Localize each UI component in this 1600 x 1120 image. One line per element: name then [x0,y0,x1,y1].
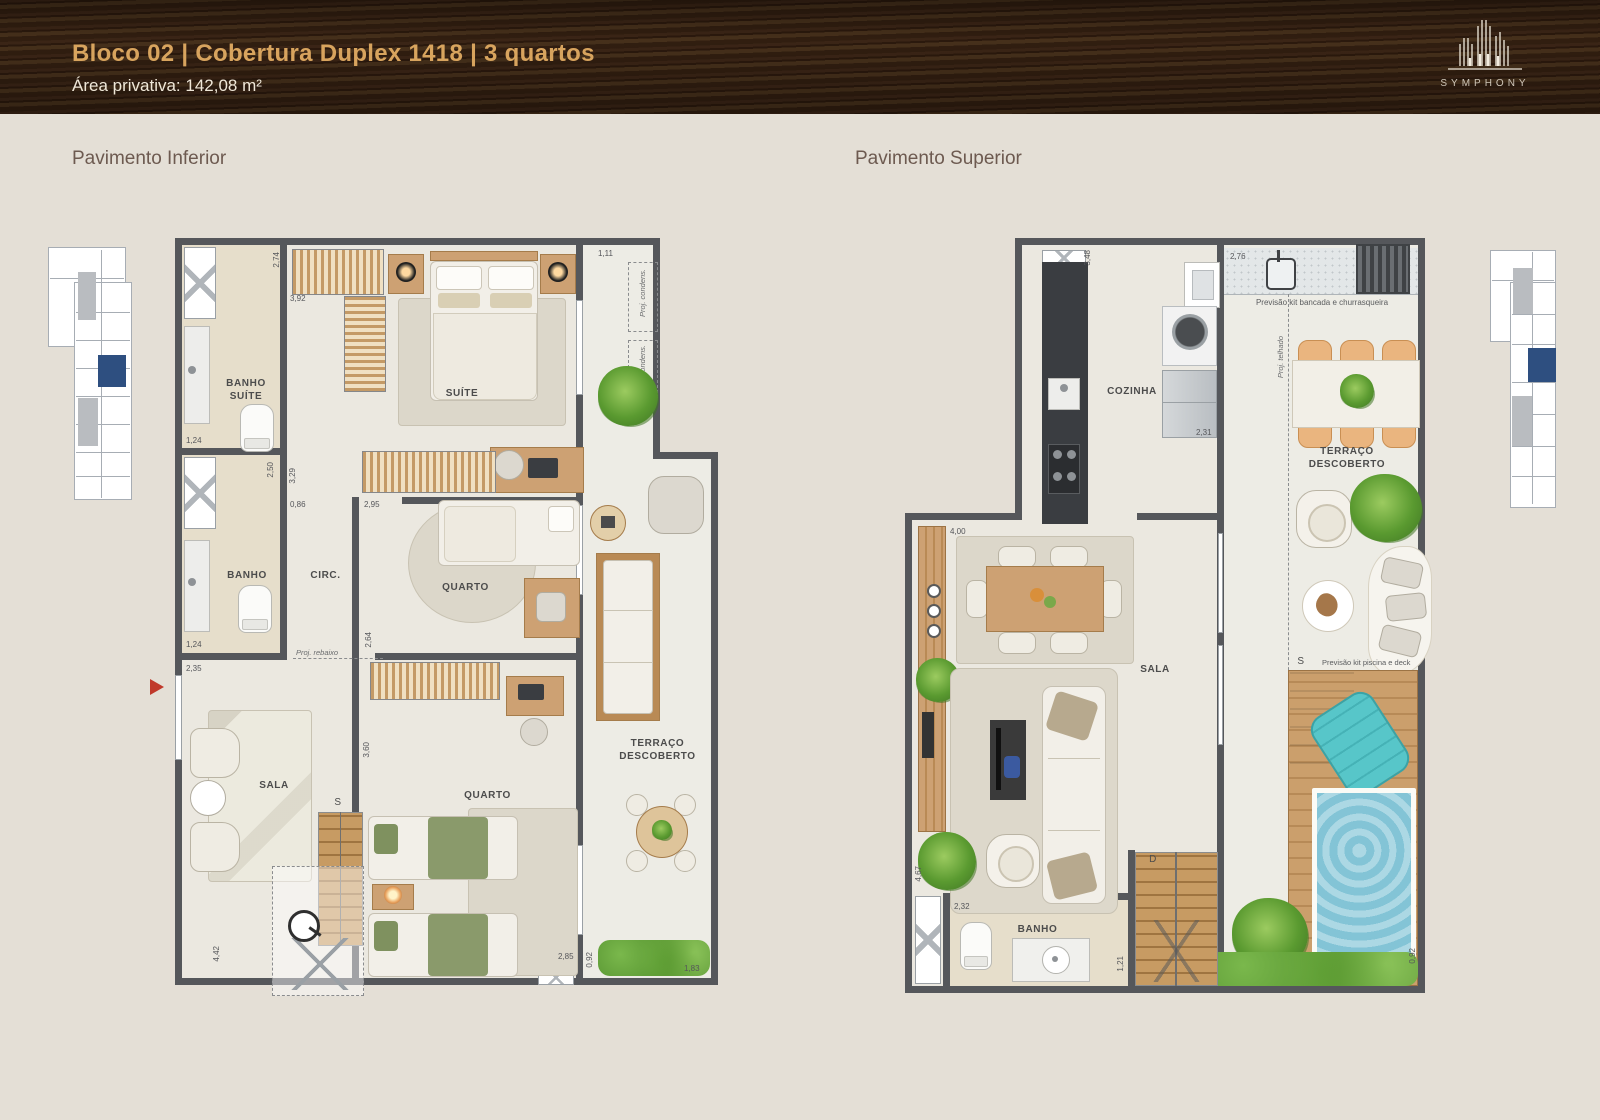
armchair-seat [998,846,1034,882]
room-label-cozinha: COZINHA [1092,386,1172,399]
key-plan-line [76,476,130,477]
key-plan-line [76,452,130,453]
room-label-quarto-1: QUARTO [428,582,503,595]
wall [1128,850,1135,993]
dim: 4,42 [212,946,221,962]
dim: 1,24 [186,640,202,649]
stair-label-s: S [330,797,346,810]
dining-chair [1050,632,1088,654]
cushion-line [603,662,653,663]
lamp-icon [396,262,416,282]
toilet [960,922,992,970]
dim: 0,92 [1408,948,1417,964]
dim: 2,85 [558,952,574,961]
bathroom-counter [184,540,210,632]
symphony-building-icon [1430,14,1540,76]
bed-blanket [433,313,537,400]
bancada-annotation: Previsão kit bancada e churrasqueira [1228,298,1416,307]
dim: 2,31 [1196,428,1212,437]
table-decor [1044,596,1056,608]
key-plan-line [1512,476,1556,477]
brand-name: SYMPHONY [1430,78,1540,89]
dim: 3,48 [1083,250,1092,266]
cushion-line [603,610,653,611]
bathroom-counter [184,326,210,424]
wall [182,653,287,660]
wall [175,238,660,245]
cushion-line [1048,758,1100,759]
under-stair-hatch [1140,920,1213,982]
room-label-terraco: TERRAÇO DESCOBERTO [595,738,720,763]
toilet [238,585,272,633]
private-area-subtitle: Área privativa: 142,08 m² [72,76,262,96]
key-plan-core-gray [1512,396,1532,446]
section-title-inferior: Pavimento Inferior [72,148,226,170]
glass-door [1218,533,1223,633]
wall [653,452,718,459]
side-table-round [190,780,226,816]
dim: 2,95 [364,500,380,509]
dim: 1,83 [684,964,700,973]
terrace-chair [674,850,696,872]
decor-panel [922,712,934,758]
stair-label-s: S [1294,656,1308,669]
laptop-icon [528,458,558,478]
key-plan-line [1512,382,1556,383]
plant-centerpiece [1340,374,1374,408]
key-plan-highlighted-unit [98,355,126,387]
spot-light-icon [927,624,941,638]
room-label-banho: BANHO [212,570,282,583]
pillow [436,266,482,290]
wall [905,513,912,993]
tv-screen [996,728,1001,790]
key-plan-line [1512,344,1556,345]
dim: 0,86 [290,500,306,509]
dim: 3,60 [362,742,371,758]
wall [352,497,359,660]
bancada-sink-icon [1266,258,1296,290]
wall [905,986,1425,993]
proj-rebaixo-label: Proj. rebaixo [296,648,338,657]
room-label-quarto-2: QUARTO [450,790,525,803]
condenser-projection: Proj. condens. [628,262,658,332]
pillow-accent [438,293,480,308]
armchair-seat [1308,504,1346,542]
dining-chair [966,580,988,618]
key-plan-core-gray [78,398,98,446]
burner-icon [1053,450,1062,459]
burner-icon [1067,472,1076,481]
dim: 2,64 [364,632,373,648]
key-plan-line [1512,446,1556,447]
wall [280,238,287,660]
desk-chair [494,450,524,480]
tank-basin [1192,270,1214,300]
spot-light-icon [927,584,941,598]
dim: 4,00 [950,527,966,536]
page-title: Bloco 02 | Cobertura Duplex 1418 | 3 qua… [72,40,595,68]
room-label-suite: SUÍTE [432,388,492,401]
key-plan-highlighted-unit [1528,348,1556,382]
bed-blanket-green [428,817,488,879]
plant [918,832,976,890]
dim: 3,29 [288,468,297,484]
cushion-line [1048,830,1100,831]
wall [1015,238,1022,520]
room-label-banho-suite: BANHO SUÍTE [210,378,282,403]
wall [1137,513,1224,520]
desk-chair [520,718,548,746]
proj-condens-label: Proj. condens. [638,269,647,317]
dim: 2,35 [186,664,202,673]
shower-box [184,457,216,529]
terrace-chair [626,850,648,872]
lamp-icon [548,262,568,282]
dim: 1,11 [598,249,613,258]
faucet-icon [188,578,196,586]
laptop-icon [518,684,544,700]
table-decor [1030,588,1044,602]
dim: 2,76 [1230,252,1246,261]
faucet-icon [1052,956,1058,962]
key-plan-line [1512,314,1556,315]
wall [711,452,718,985]
dim: 2,32 [954,902,970,911]
key-plan-core-gray [78,272,96,320]
key-plan-core-gray [1513,268,1533,314]
proj-rebaixo-line [293,658,383,659]
wardrobe [370,662,500,700]
shower-box [184,247,216,319]
tanque-icon [288,910,320,942]
fridge-divider [1162,402,1217,403]
proj-telhado-line [1288,294,1289,690]
pillow [488,266,534,290]
room-label-sala: SALA [1125,664,1185,677]
wall [905,513,1022,520]
dresser-item [536,592,566,622]
burner-icon [1067,450,1076,459]
room-label-terraco: TERRAÇO DESCOBERTO [1282,446,1412,471]
hedge-plants [1200,952,1418,986]
entry-door-opening [175,675,182,760]
armchair [190,822,240,872]
swimming-pool [1312,788,1416,978]
dim: 1,24 [186,436,202,445]
sofa-cushions [603,560,653,714]
bed-blanket-green [428,914,488,976]
wardrobe [362,451,496,493]
wall [943,893,950,986]
key-plan-line [76,396,130,397]
proj-telhado-label: Proj. telhado [1276,336,1285,378]
kitchen-sink [1048,378,1080,410]
key-plan-right-main-block [1510,282,1556,508]
wardrobe [292,249,384,295]
room-label-circ: CIRC. [298,570,353,583]
dim: 3,92 [290,294,306,303]
dining-chair [1050,546,1088,568]
dim: 2,50 [266,462,275,478]
header-wood-band: Bloco 02 | Cobertura Duplex 1418 | 3 qua… [0,0,1600,114]
churrasqueira-grill [1356,244,1410,294]
window [915,896,941,984]
pillow-green [374,921,398,951]
armchair [190,728,240,778]
dim: 2,74 [272,252,281,268]
key-plan-line [76,340,130,341]
palm-plant [1350,474,1422,542]
symphony-logo: SYMPHONY [1430,14,1540,100]
wall [175,978,718,985]
dining-chair [998,632,1036,654]
faucet-icon [1060,384,1068,392]
burner-icon [1053,472,1062,481]
room-label-banho: BANHO [1000,924,1075,937]
dim: 1,21 [1116,956,1125,972]
faucet-icon [188,366,196,374]
spot-light-icon [927,604,941,618]
glass-door [1218,645,1223,745]
book-icon [601,516,615,528]
plant [598,366,658,426]
dim: 4,67 [914,866,923,882]
dim: 0,92 [585,952,594,968]
under-stair-hatch [282,938,358,990]
wardrobe [344,296,386,392]
bed-headboard [430,251,538,261]
wall [375,653,583,660]
plant-small [652,820,672,840]
glass-door [576,300,583,395]
armchair [648,476,704,534]
section-title-superior: Pavimento Superior [855,148,1022,170]
piscina-annotation: Previsão kit piscina e deck [1322,658,1410,667]
pillow-accent [490,293,532,308]
bancada-faucet-icon [1277,250,1280,262]
lamp-icon [384,886,402,904]
pillow [548,506,574,532]
daybed-cushion [1385,592,1427,622]
brochure-page: Bloco 02 | Cobertura Duplex 1418 | 3 qua… [0,0,1600,1120]
room-label-sala: SALA [244,780,304,793]
entry-arrow-icon [150,679,164,695]
pillow-green [374,824,398,854]
washer-door-icon [1172,314,1208,350]
toilet [240,404,274,452]
wall [175,238,182,985]
bed-blanket [444,506,516,562]
tv-decor-blue [1004,756,1020,778]
stair-label-d: D [1145,854,1161,867]
dining-chair [998,546,1036,568]
